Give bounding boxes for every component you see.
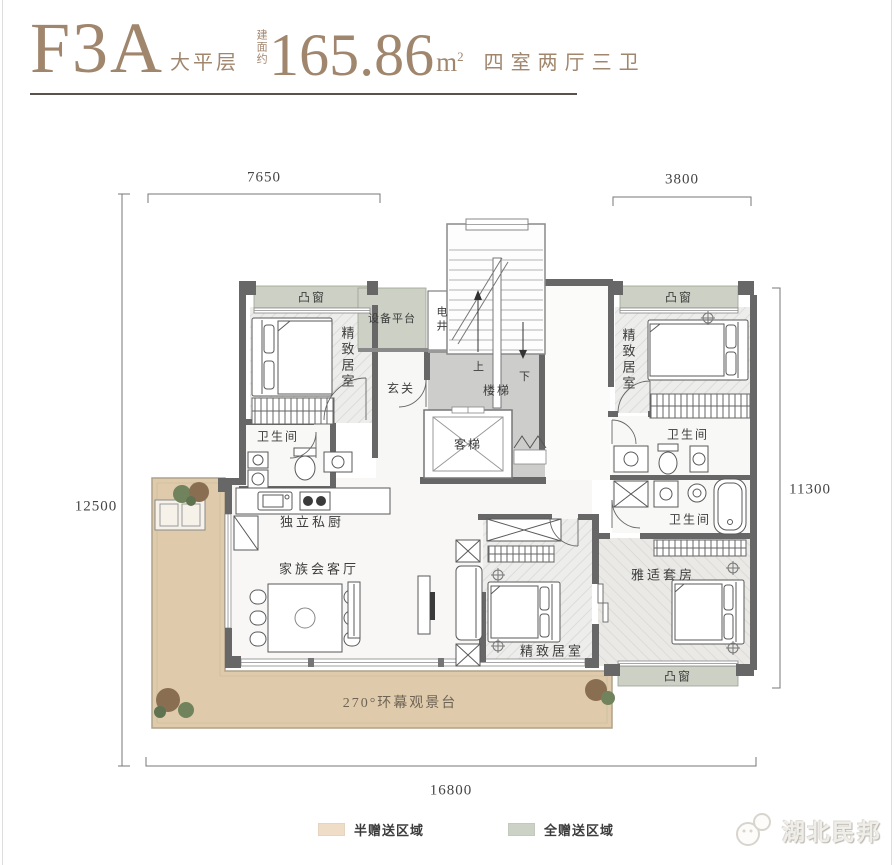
bay-window-label: 凸窗 (298, 289, 326, 306)
bathroom-label: 卫生间 (667, 426, 709, 443)
dim-top-right: 3800 (665, 172, 699, 189)
bed (672, 580, 744, 644)
legend-swatch-full-gift (508, 823, 535, 836)
watermark: 湖北民邦 (730, 810, 882, 850)
washbasin (614, 446, 648, 472)
legend: 半赠送区域 全赠送区域 (318, 820, 614, 839)
bedroom-label: 精致居室 (619, 328, 638, 392)
equipment-platform-label: 设备平台 (368, 310, 416, 326)
dim-top-left: 7650 (247, 170, 281, 187)
terrace-label: 270°环幕观景台 (343, 692, 458, 712)
pedestal-sink (688, 484, 706, 502)
dim-bottom: 16800 (430, 783, 473, 800)
electrical-shaft-label: 电井 (433, 306, 449, 334)
washbasin (324, 452, 352, 472)
living-room-label: 家族会客厅 (279, 559, 359, 578)
washbasin (654, 481, 678, 507)
toilet (658, 444, 678, 474)
washer (248, 470, 268, 488)
floorplan-drawing (0, 0, 895, 865)
bathroom-label: 卫生间 (669, 511, 711, 528)
elevator-label: 客梯 (454, 436, 482, 453)
sideboard (348, 582, 360, 638)
bed (488, 582, 560, 642)
bed (252, 318, 332, 396)
dim-left: 12500 (75, 499, 118, 516)
floorplan-page: { "header": { "unit_code": "F3A", "unit_… (0, 0, 895, 865)
kitchen-label: 独立私厨 (280, 512, 344, 531)
bay-window-label: 凸窗 (664, 668, 692, 685)
legend-swatch-semi-gift (318, 823, 345, 836)
sofa (456, 540, 482, 666)
stairs-label: 楼梯 (483, 382, 511, 399)
bay-window-label: 凸窗 (665, 289, 693, 306)
stairs-down-label: 下 (519, 368, 531, 384)
washbasin (690, 446, 708, 472)
bed (648, 320, 748, 380)
foyer-label: 玄关 (387, 380, 415, 397)
washbasin (248, 452, 268, 468)
bedroom-label: 精致居室 (338, 326, 357, 390)
shower (614, 481, 648, 507)
stairs-up-label: 上 (473, 358, 485, 374)
suite-label: 雅适套房 (631, 565, 695, 584)
brand-logo-icon (730, 810, 774, 850)
bathtub (714, 479, 746, 534)
bedroom-label: 精致居室 (520, 641, 584, 660)
terrace-ac-unit (155, 500, 205, 530)
watermark-brand-text: 湖北民邦 (782, 813, 882, 847)
bathroom-label: 卫生间 (257, 428, 299, 445)
dim-right: 11300 (789, 482, 831, 499)
legend-label-full-gift: 全赠送区域 (544, 820, 614, 839)
legend-label-semi-gift: 半赠送区域 (354, 820, 424, 839)
